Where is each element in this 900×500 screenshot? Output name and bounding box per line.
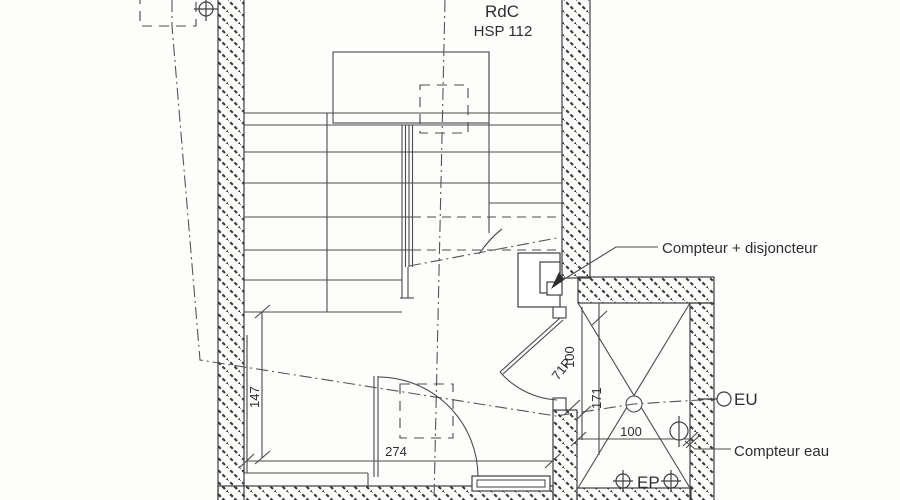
door-swing-arc [378, 377, 478, 477]
wall-duct-top [578, 277, 714, 303]
dim-171: 171 [589, 387, 604, 409]
dashed-opening-bottom [400, 384, 453, 438]
door-swing-arc [500, 372, 557, 400]
wall-duct-right [690, 303, 714, 500]
eu-label: EU [734, 390, 758, 409]
water-meter-icon [670, 416, 688, 447]
floor-plan-svg: 274 147 71P 100 171 100 [0, 0, 900, 500]
wall-right-top [562, 0, 590, 278]
door-threshold [472, 476, 550, 491]
top-left-reservation [140, 0, 196, 26]
electric-meter-label: Compteur + disjoncteur [662, 240, 818, 257]
sewer-route-line [172, 0, 716, 416]
door-71p [500, 307, 566, 410]
wall-duct-bottom [577, 488, 691, 500]
dashed-opening-top [420, 85, 468, 133]
ceiling-height-label: HSP 112 [474, 23, 533, 40]
dim-147: 147 [247, 386, 262, 408]
dim-274: 274 [385, 444, 407, 459]
wall-left [218, 0, 244, 500]
dim-100-door: 100 [562, 346, 577, 368]
utility-symbols [194, 0, 731, 492]
dim-100-duct: 100 [620, 424, 642, 439]
floor-label: RdC [485, 2, 519, 21]
floor-plan-canvas: 274 147 71P 100 171 100 [0, 0, 900, 500]
room-lines [244, 335, 368, 486]
water-meter-label: Compteur eau [734, 443, 829, 460]
ep-label: EP [637, 473, 660, 492]
axis-marker-icon [194, 0, 218, 21]
entrance-door [374, 376, 478, 477]
wall-duct-left [553, 410, 577, 500]
